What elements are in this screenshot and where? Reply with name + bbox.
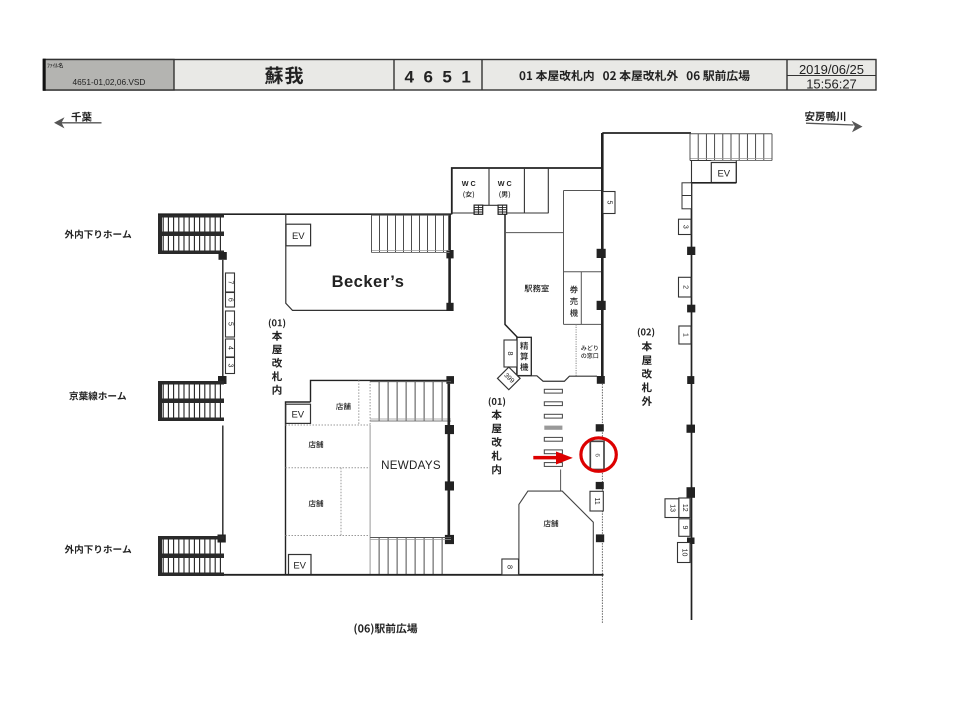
svg-text:EV: EV xyxy=(293,561,306,572)
svg-text:11: 11 xyxy=(593,497,600,504)
svg-text:13: 13 xyxy=(668,504,675,512)
svg-text:6: 6 xyxy=(593,453,600,457)
svg-text:12: 12 xyxy=(681,504,688,512)
svg-text:2: 2 xyxy=(681,285,688,289)
svg-text:6: 6 xyxy=(227,298,234,302)
svg-text:2019/06/25: 2019/06/25 xyxy=(799,62,864,77)
svg-text:3: 3 xyxy=(681,225,688,229)
svg-text:EV: EV xyxy=(291,410,304,421)
svg-text:4651-01,02,06.VSD: 4651-01,02,06.VSD xyxy=(73,77,146,87)
svg-text:NEWDAYS: NEWDAYS xyxy=(381,459,441,472)
svg-text:EV: EV xyxy=(292,231,305,242)
svg-text:W C: W C xyxy=(498,179,512,188)
svg-text:10: 10 xyxy=(680,549,687,557)
svg-text:7: 7 xyxy=(227,281,234,285)
svg-text:1: 1 xyxy=(682,333,689,337)
svg-text:Becker’s: Becker’s xyxy=(332,273,405,291)
svg-text:W C: W C xyxy=(462,179,476,188)
svg-text:EV: EV xyxy=(717,168,730,179)
svg-text:15:56:27: 15:56:27 xyxy=(806,76,857,91)
svg-text:5: 5 xyxy=(606,201,613,205)
svg-text:8: 8 xyxy=(506,565,515,569)
svg-text:8: 8 xyxy=(506,351,515,355)
svg-text:3: 3 xyxy=(227,364,234,368)
svg-text:9: 9 xyxy=(681,526,688,530)
svg-text:5: 5 xyxy=(227,322,234,326)
svg-text:4: 4 xyxy=(227,346,234,350)
svg-text:4651: 4651 xyxy=(405,68,481,87)
